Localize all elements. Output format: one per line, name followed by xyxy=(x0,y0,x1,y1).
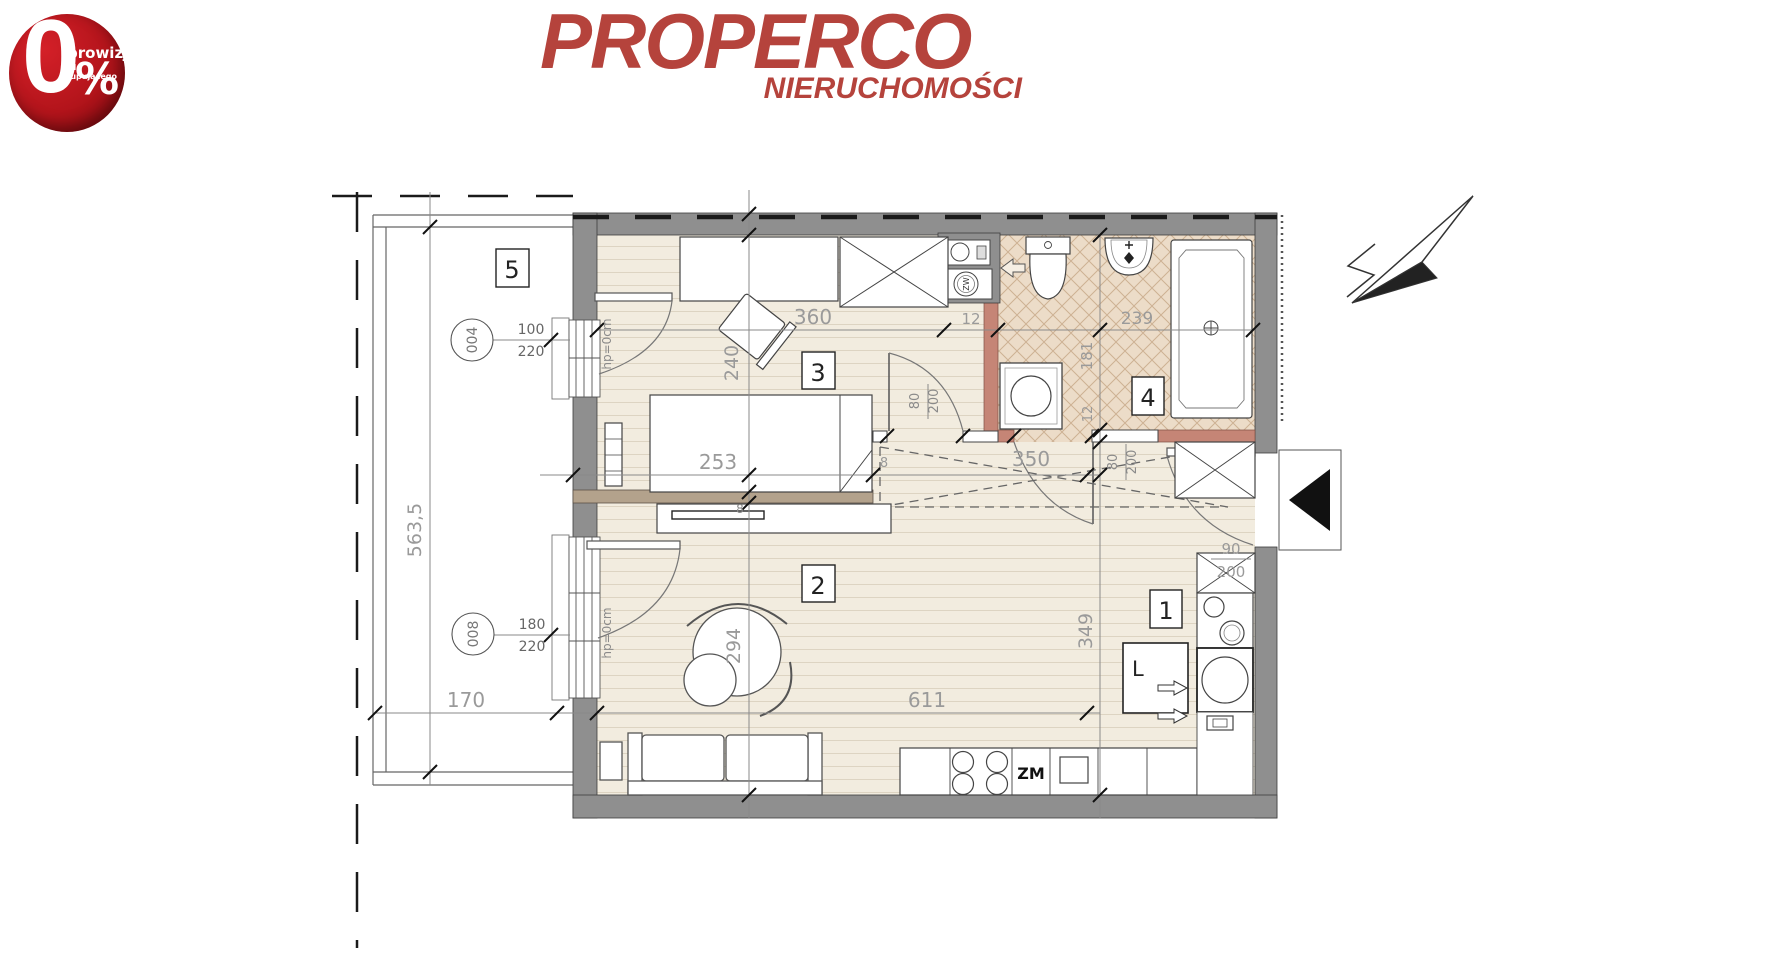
tap-fixture xyxy=(1197,712,1253,795)
svg-text:008: 008 xyxy=(466,621,482,648)
dim-balcony-length: 563,5 xyxy=(404,503,426,557)
dim-db2b: 200 xyxy=(1125,450,1140,475)
floorplan-drawing: ZW xyxy=(0,0,1776,970)
dim-db2a: 80 xyxy=(1106,454,1121,471)
dim-living-height: 294 xyxy=(723,628,745,664)
dim-door-gap: 8 xyxy=(880,456,888,471)
floorplan-page: 0 % prowizji od kupującego PROPERCO NIER… xyxy=(0,0,1776,970)
dim-bath-wall: 12 xyxy=(1081,406,1096,423)
room-3-label: 3 xyxy=(810,359,825,387)
desk xyxy=(680,237,838,301)
sofa xyxy=(600,733,822,795)
dim-entry-b: 200 xyxy=(1217,563,1246,581)
room-4-label: 4 xyxy=(1140,384,1155,412)
dim-shaft-width: 12 xyxy=(961,310,980,328)
washing-machine-icon xyxy=(1000,363,1062,429)
hall-wardrobe-icon xyxy=(1175,442,1255,498)
dim-bath-height: 181 xyxy=(1078,342,1096,371)
room-1-label: 1 xyxy=(1158,597,1173,625)
dim-wall-thk: 8 xyxy=(736,502,744,516)
fridge-label: L xyxy=(1132,657,1144,681)
dim-living-width: 611 xyxy=(908,688,946,712)
dim-bedroom-width: 360 xyxy=(794,305,832,329)
balcony-door-180-220 xyxy=(552,535,600,700)
north-arrow-icon xyxy=(1347,196,1473,303)
dim-db1a: 80 xyxy=(908,393,923,410)
dim-balcony-width: 170 xyxy=(447,688,485,712)
dim-w1a: 100 xyxy=(518,322,545,338)
entrance-marker-icon xyxy=(1279,450,1341,550)
tv-cabinet xyxy=(657,504,891,533)
dim-entry-a: 90 xyxy=(1221,540,1240,558)
room-2-label: 2 xyxy=(810,572,825,600)
meters-box xyxy=(1197,593,1253,648)
room-5-label: 5 xyxy=(504,256,519,284)
wardrobe-icon xyxy=(840,237,948,307)
bathtub-icon xyxy=(1171,240,1252,418)
dim-bed-length: 253 xyxy=(699,450,737,474)
dim-bedroom-height: 240 xyxy=(721,345,743,381)
balcony xyxy=(332,192,573,948)
window-100-220 xyxy=(552,318,600,399)
fridge xyxy=(1123,643,1188,723)
dim-hall-height: 349 xyxy=(1075,613,1097,649)
sill-height-2: hp=0cm xyxy=(600,607,614,658)
sink-basin xyxy=(1060,757,1088,783)
sink-label: ZM xyxy=(1017,764,1045,783)
bed xyxy=(650,395,872,492)
svg-text:004: 004 xyxy=(465,327,481,354)
dim-db1b: 200 xyxy=(927,389,942,414)
window-ref-004: 004 xyxy=(451,319,493,361)
sill-height-1: hp=0cm xyxy=(600,318,614,369)
window-ref-008: 008 xyxy=(452,613,494,655)
dim-bath-width: 239 xyxy=(1121,309,1153,329)
bedside-table xyxy=(605,423,622,486)
dim-storage-width: 350 xyxy=(1012,447,1050,471)
meter-label: ZW xyxy=(962,277,971,290)
dim-w2a: 180 xyxy=(519,617,546,633)
kitchen-counter xyxy=(900,748,1197,795)
dim-w2b: 220 xyxy=(519,639,546,655)
boiler-icon xyxy=(1197,648,1253,712)
dim-w1b: 220 xyxy=(518,344,545,360)
